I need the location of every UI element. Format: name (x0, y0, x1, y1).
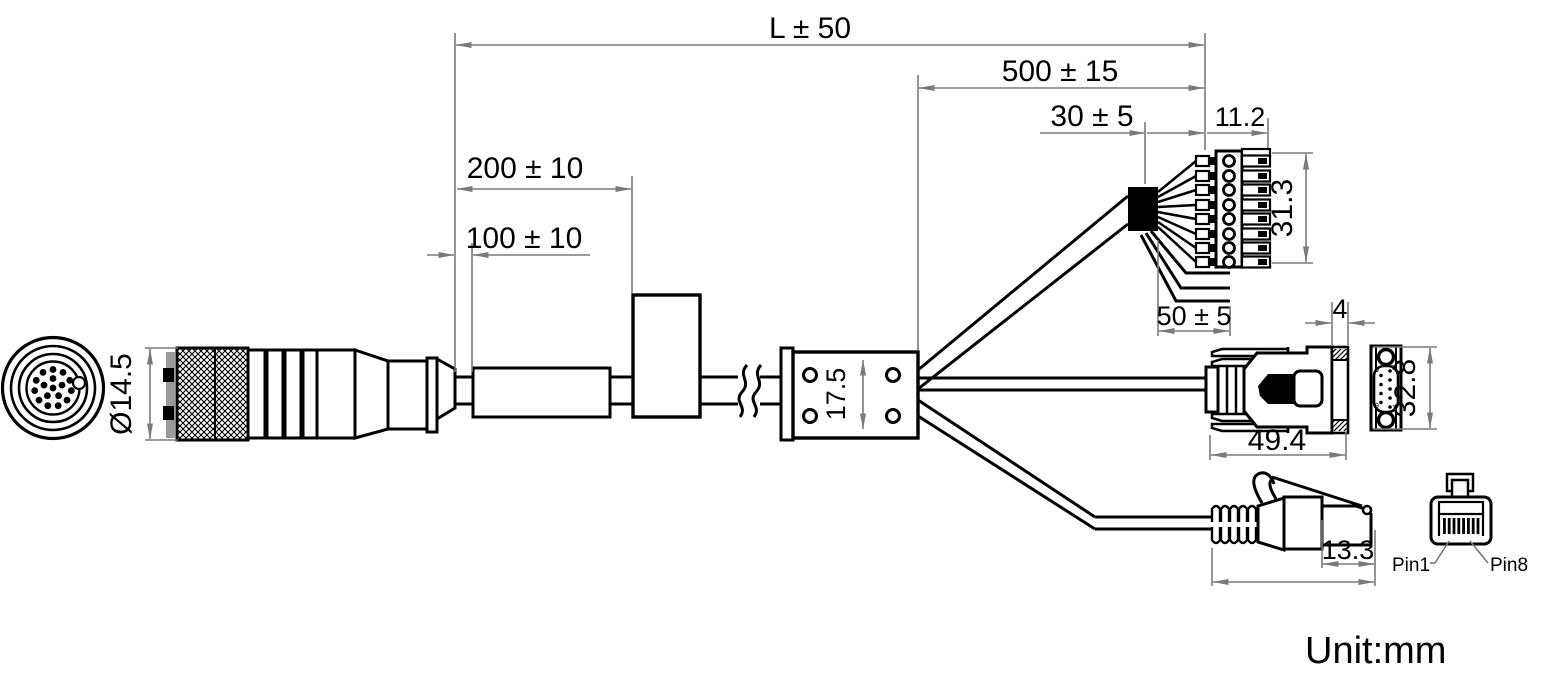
dim-terminal-height: 31.3 (1266, 179, 1299, 237)
m12-pins (31, 366, 74, 409)
dim-exposed-wires: 30 ± 5 (1050, 100, 1133, 133)
drawing-canvas: 6 5 9 1 (0, 0, 1541, 699)
knurled-nut (177, 348, 248, 440)
dim-diameter: Ø14.5 (105, 353, 138, 435)
dim-overall-length: L ± 50 (769, 12, 851, 45)
pin1-label: Pin1 (1392, 555, 1430, 576)
dim-spare-wires: 50 ± 5 (1157, 301, 1232, 331)
dim-db9-height: 32.8 (1389, 359, 1422, 417)
main-cable (455, 295, 781, 417)
dim-branch-length: 500 ± 15 (1002, 55, 1119, 88)
m12-connector-front-view (3, 338, 104, 439)
cable-assembly-drawing: 6 5 9 1 (0, 0, 1541, 699)
cable-break-symbol (753, 365, 761, 417)
ferrite-block (633, 295, 700, 417)
cable-band (1128, 187, 1158, 231)
dim-junction-height: 17.5 (821, 368, 851, 421)
rj45-connector-front-view: Pin1 Pin8 (1392, 474, 1528, 576)
terminal-block-connector (1196, 149, 1270, 268)
keyway-notch (73, 377, 85, 389)
m12-connector-side-view (163, 348, 455, 440)
unit-label: Unit:mm (1305, 630, 1446, 672)
rj45-boot-ribs (1212, 506, 1256, 543)
branch-cables (918, 196, 1212, 529)
db9-pin-number: 9 (1375, 403, 1379, 410)
thread-strip (166, 352, 175, 438)
db9-connector-side-view (1206, 347, 1348, 433)
dim-100: 100 ± 10 (466, 222, 583, 255)
dim-terminal-depth: 11.2 (1215, 102, 1266, 132)
dim-flange: 4 (1332, 294, 1347, 324)
wire-ferrules (1196, 156, 1209, 267)
cable-break-symbol (739, 365, 747, 417)
dim-rj45-plug: 13.3 (1322, 535, 1375, 565)
pin8-label: Pin8 (1490, 555, 1528, 576)
dim-200: 200 ± 10 (467, 152, 584, 185)
shrink-tube (473, 368, 610, 417)
dim-db9-length: 49.4 (1248, 424, 1306, 457)
db9-pin-number: 6 (1375, 367, 1379, 374)
